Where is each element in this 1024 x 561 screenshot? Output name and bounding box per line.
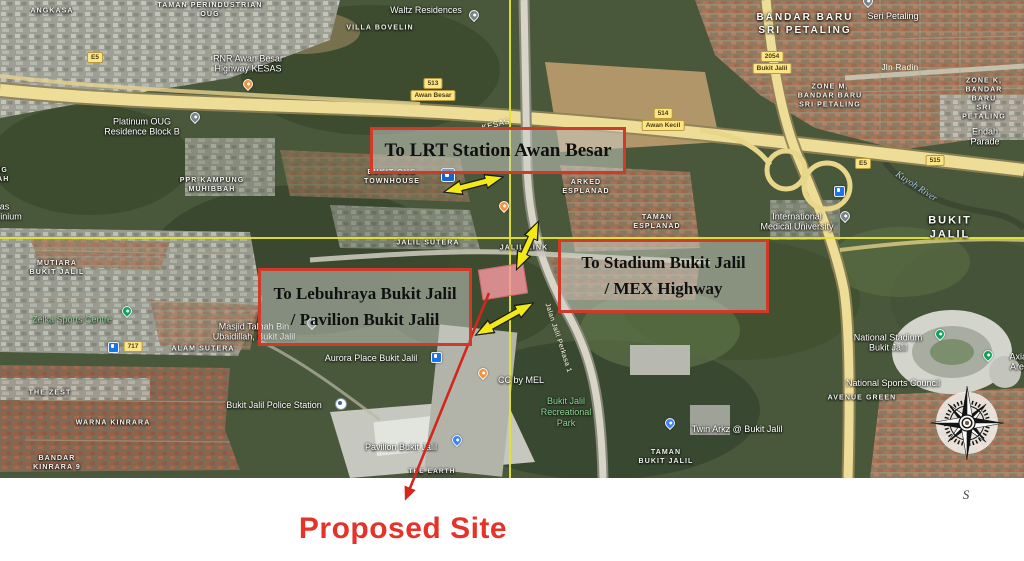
map-terrain — [0, 0, 1024, 478]
annotation-text: To Stadium Bukit Jalil — [581, 250, 745, 276]
annotation-box-stadium: To Stadium Bukit Jalil / MEX Highway — [558, 239, 769, 313]
annotation-text: / MEX Highway — [604, 276, 722, 302]
annotation-text: To Lebuhraya Bukit Jalil — [273, 281, 456, 307]
annotation-text: / Pavilion Bukit Jalil — [291, 307, 440, 333]
crosshair-vertical-line — [509, 0, 511, 478]
annotation-box-lrt: To LRT Station Awan Besar — [370, 127, 626, 174]
proposed-site-caption: Proposed Site — [299, 512, 507, 546]
annotation-text: To LRT Station Awan Besar — [384, 140, 611, 162]
slide: TAMAN PERINDUSTRIAN OUGANGKASAVILLA BOVE… — [0, 0, 1024, 561]
annotation-box-lebuhraya: To Lebuhraya Bukit Jalil / Pavilion Buki… — [258, 268, 472, 346]
crosshair-horizontal-line — [0, 237, 1024, 239]
satellite-map: TAMAN PERINDUSTRIAN OUGANGKASAVILLA BOVE… — [0, 0, 1024, 478]
compass-south-letter: S — [963, 487, 970, 503]
